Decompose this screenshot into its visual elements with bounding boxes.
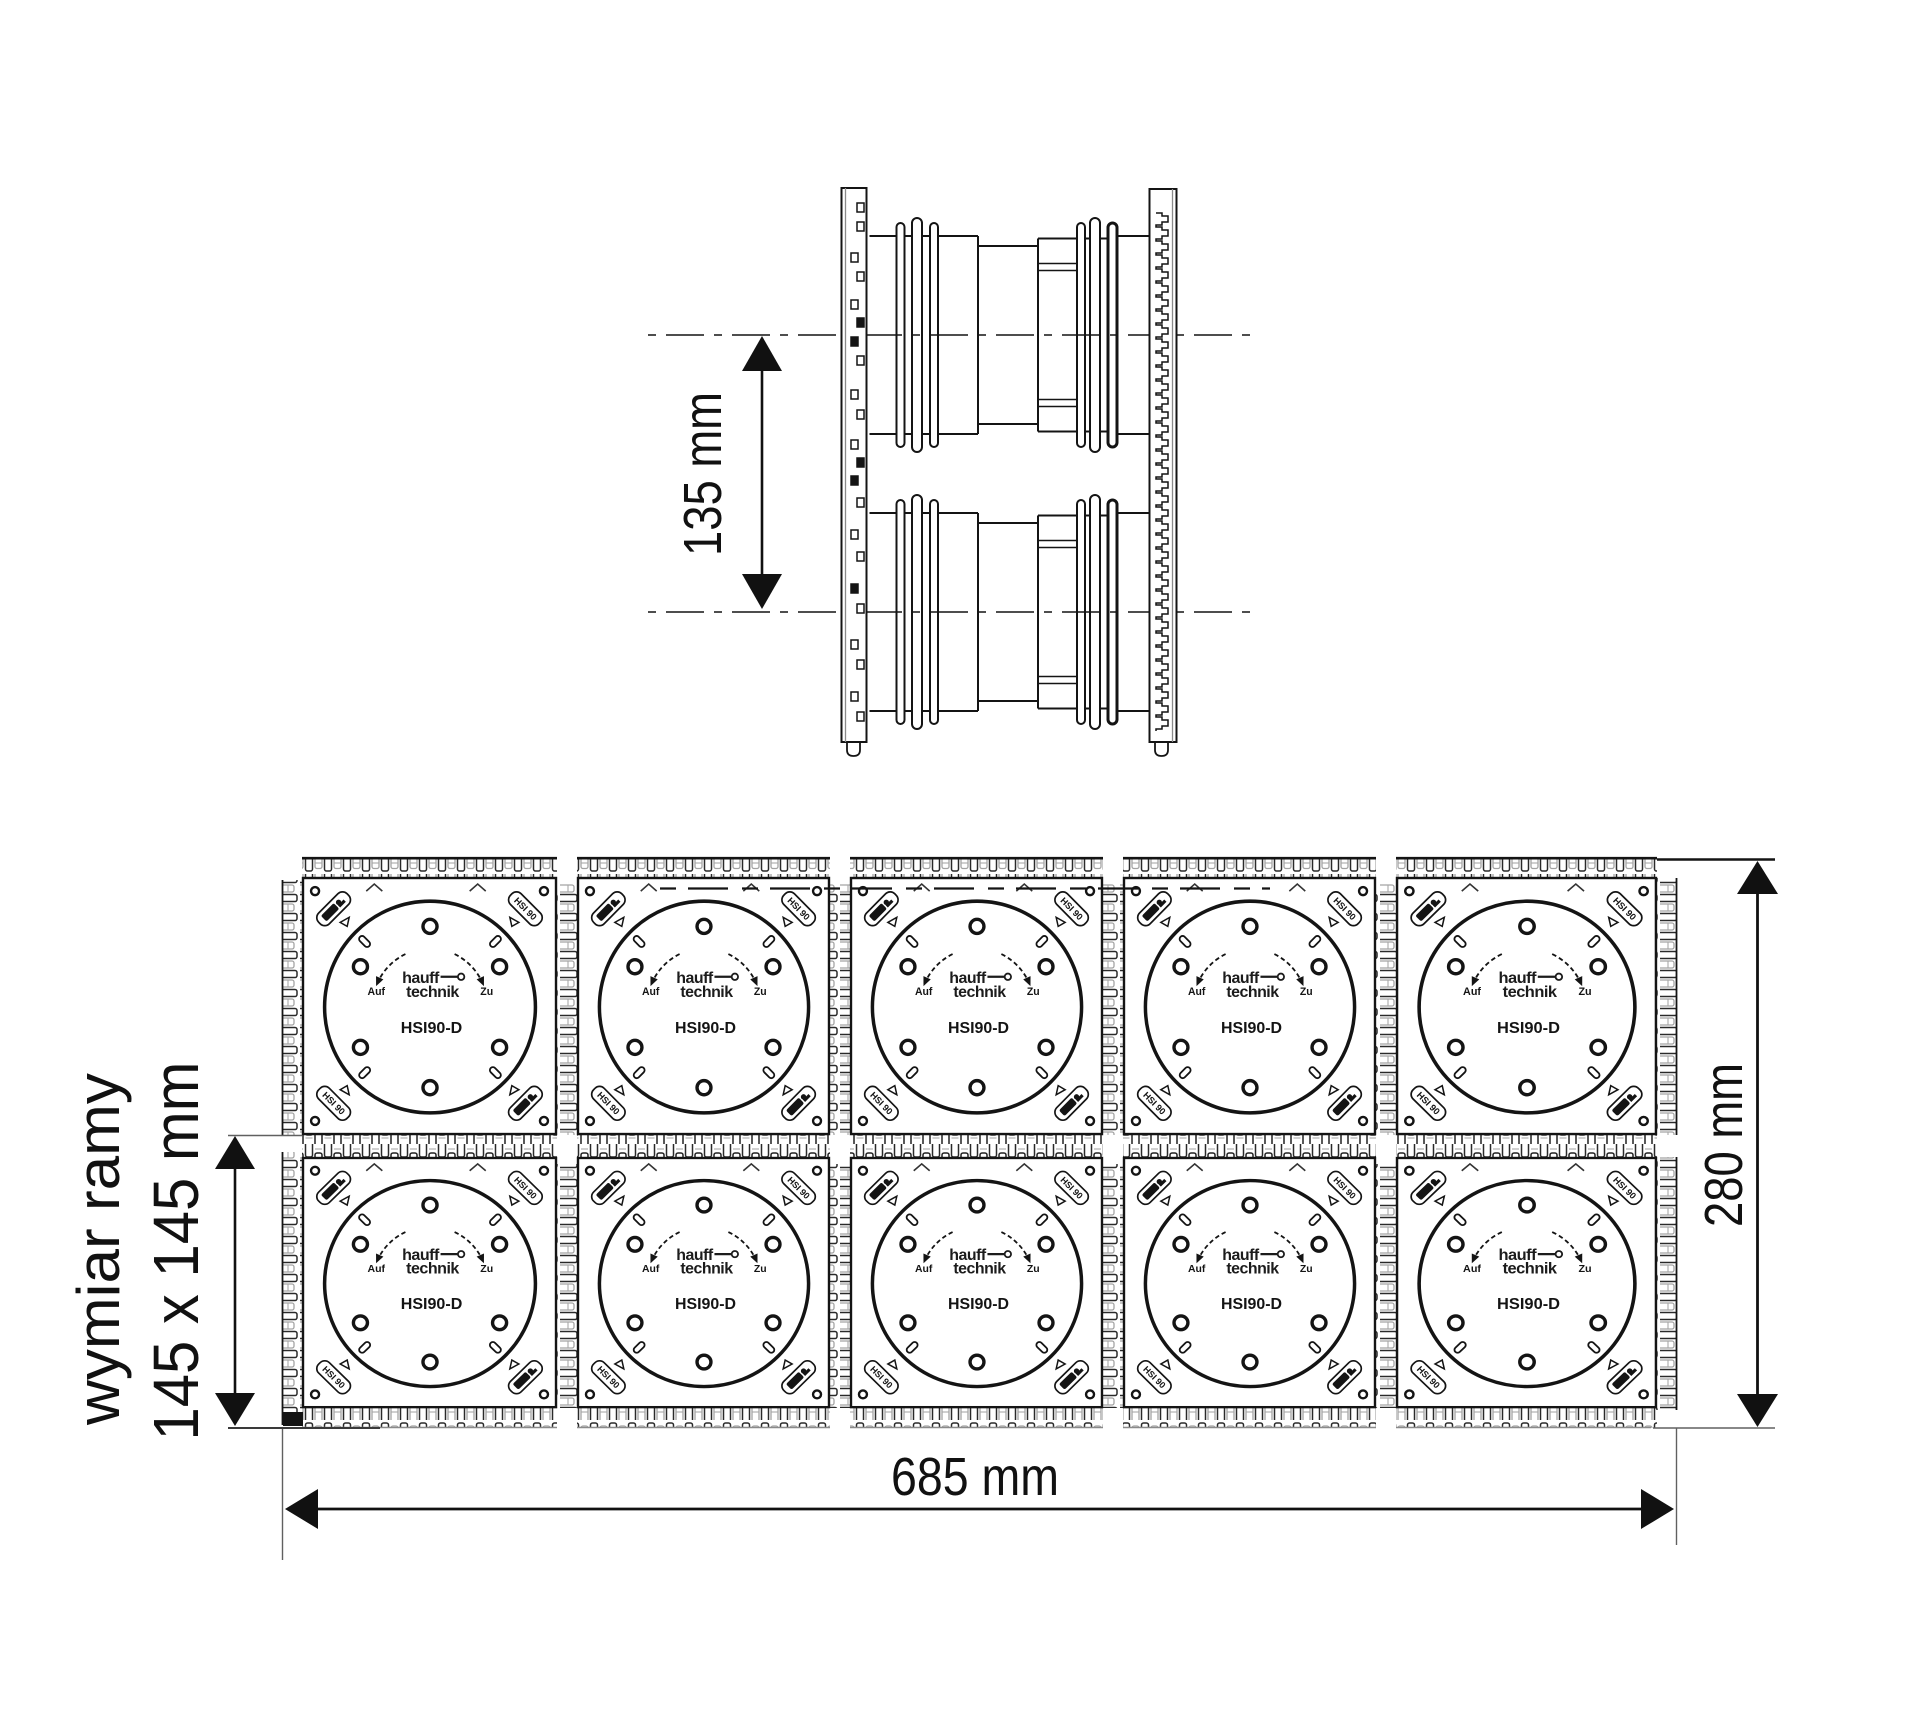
svg-text:685 mm: 685 mm xyxy=(891,1447,1059,1507)
svg-text:280 mm: 280 mm xyxy=(1694,1063,1754,1227)
svg-text:135 mm: 135 mm xyxy=(673,392,733,556)
svg-text:145 x 145 mm: 145 x 145 mm xyxy=(140,1062,212,1441)
svg-text:wymiar ramy: wymiar ramy xyxy=(65,1073,132,1426)
